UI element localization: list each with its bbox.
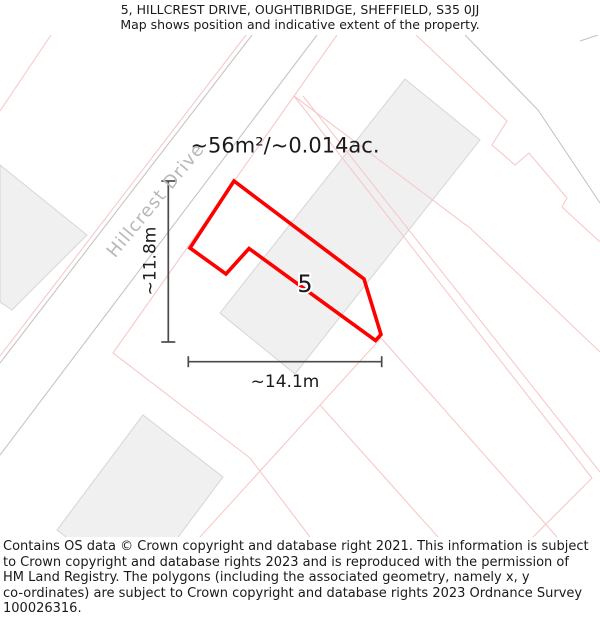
- area-label: ~56m²/~0.014ac.: [190, 134, 379, 158]
- map-header: 5, HILLCREST DRIVE, OUGHTIBRIDGE, SHEFFI…: [0, 2, 600, 32]
- parcel-boundary-9: [320, 405, 438, 537]
- parcel-boundary-3: [0, 35, 51, 111]
- copyright-footer: Contains OS data © Crown copyright and d…: [3, 539, 597, 617]
- width-dimension-label: ~14.1m: [251, 372, 320, 392]
- top-right-road-fragment: [580, 35, 598, 41]
- building-bottom: [57, 415, 223, 537]
- map-description-subtitle: Map shows position and indicative extent…: [0, 17, 600, 32]
- map-canvas: Hillcrest Drive ~56m²/~0.014ac. 5 ~14.1m…: [0, 35, 600, 537]
- parcel-boundary-8: [381, 338, 557, 537]
- property-address-title: 5, HILLCREST DRIVE, OUGHTIBRIDGE, SHEFFI…: [0, 2, 600, 17]
- right-road-edge: [465, 35, 600, 203]
- building-left: [0, 165, 87, 310]
- property-map: Hillcrest Drive ~56m²/~0.014ac. 5 ~14.1m…: [0, 35, 600, 537]
- building-terrace: [220, 79, 480, 374]
- height-dimension-label: ~11.8m: [141, 227, 161, 296]
- plot-number-label: 5: [297, 270, 312, 298]
